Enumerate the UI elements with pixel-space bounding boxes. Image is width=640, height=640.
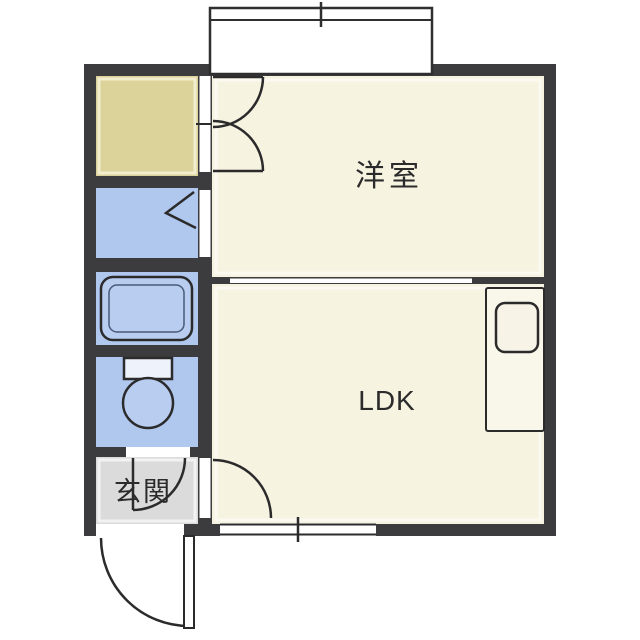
entrance-ldk-doorway-gap <box>200 458 211 518</box>
toilet-bowl <box>123 378 173 428</box>
bathtub-icon <box>101 277 192 340</box>
washroom <box>96 188 198 258</box>
bathtub-outer <box>101 277 192 340</box>
front-door-icon <box>101 536 194 628</box>
toilet-doorway-gap <box>126 447 190 457</box>
kitchen-sink-icon <box>496 303 538 352</box>
front-doorway-gap <box>96 524 184 536</box>
front-door-leaf <box>184 536 194 628</box>
closet-room <box>96 76 198 176</box>
kitchen-counter <box>486 288 544 431</box>
western-room <box>212 76 544 277</box>
floor-plan-drawing <box>0 0 640 640</box>
toilet-tank <box>124 358 172 379</box>
sliding-door-icon <box>230 279 472 284</box>
toilet-icon <box>123 358 173 428</box>
front-door-arc <box>101 538 189 626</box>
washroom-doorway-gap <box>200 190 211 257</box>
floor-plan: 洋室 LDK 玄関 <box>0 0 640 640</box>
balcony-window-icon <box>210 2 432 74</box>
entrance-room <box>96 457 198 524</box>
